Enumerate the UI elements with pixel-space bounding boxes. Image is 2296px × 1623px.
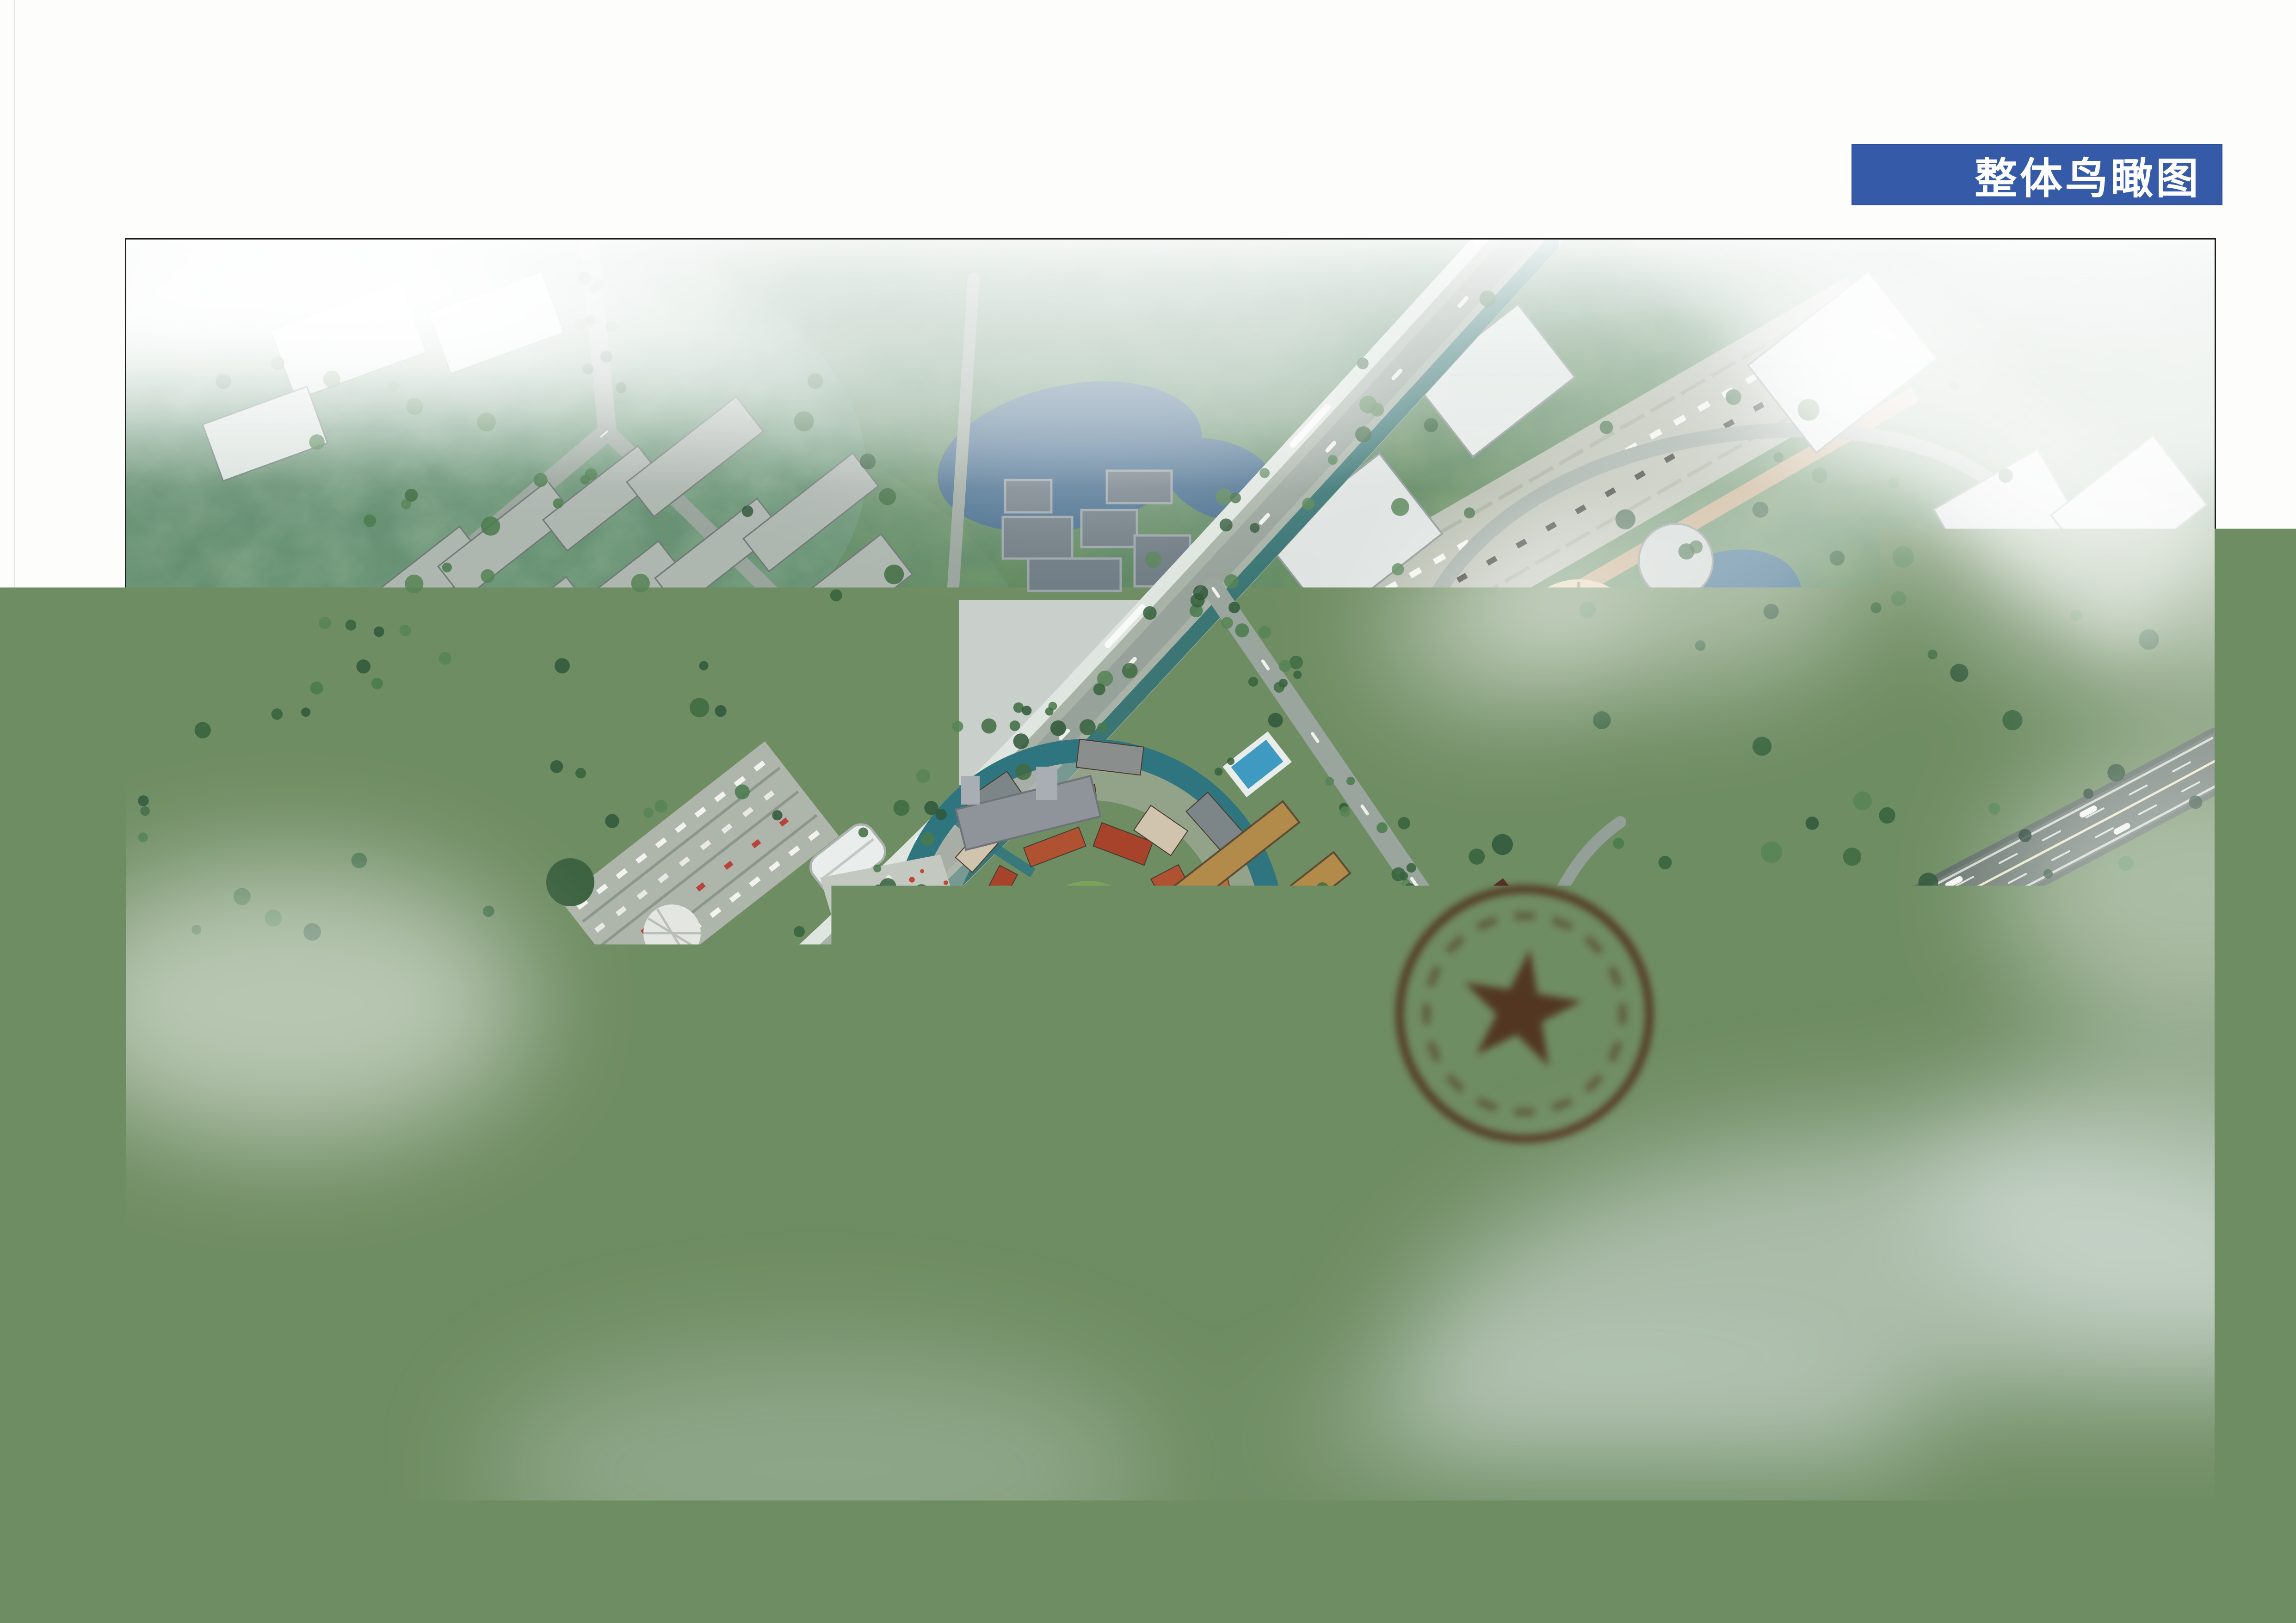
scanned-document-page: 整体鸟瞰图 — [0, 0, 2296, 1623]
scanner-edge-line — [14, 0, 15, 1623]
aerial-bird-eye-rendering — [125, 238, 2216, 1502]
document-caption: 芜湖市城东6号地块规划设计方案 — [1641, 1550, 2197, 1592]
section-title-label: 整体鸟瞰图 — [1975, 144, 2201, 206]
masterplan-scene — [126, 240, 2215, 1500]
page-edge-shadow — [0, 1615, 2296, 1623]
scanner-artifact-line — [0, 1603, 2296, 1604]
footer-rule — [165, 1529, 2248, 1547]
section-title-banner: 整体鸟瞰图 — [1852, 144, 2222, 205]
